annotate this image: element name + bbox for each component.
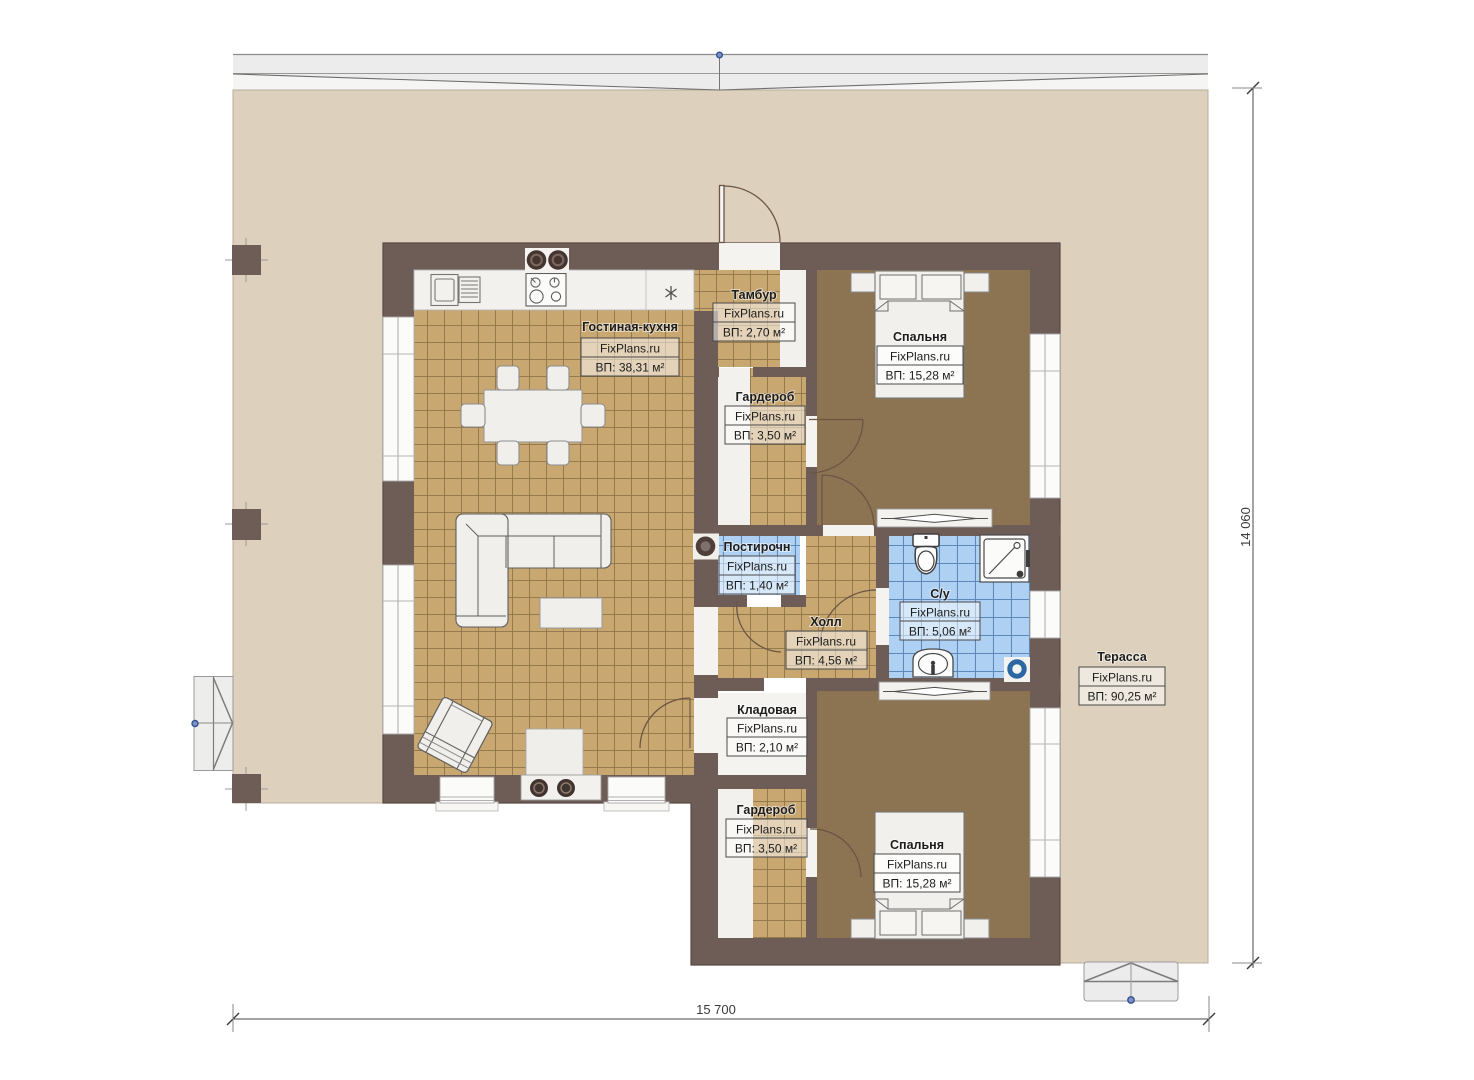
svg-text:Гардероб: Гардероб [736, 803, 795, 817]
svg-text:ВП: 5,06 м²: ВП: 5,06 м² [909, 625, 971, 639]
svg-text:ВП: 1,40 м²: ВП: 1,40 м² [726, 579, 788, 593]
svg-text:Гардероб: Гардероб [735, 390, 794, 404]
svg-text:FixPlans.ru: FixPlans.ru [600, 342, 660, 356]
svg-text:FixPlans.ru: FixPlans.ru [724, 307, 784, 321]
svg-text:FixPlans.ru: FixPlans.ru [1092, 671, 1152, 685]
svg-text:ВП: 15,28 м²: ВП: 15,28 м² [886, 369, 955, 383]
svg-text:ВП: 2,70 м²: ВП: 2,70 м² [723, 326, 785, 340]
svg-text:ВП: 4,56 м²: ВП: 4,56 м² [795, 654, 857, 668]
svg-text:Постирочн: Постирочн [724, 540, 791, 554]
svg-text:FixPlans.ru: FixPlans.ru [910, 606, 970, 620]
svg-text:Терасса: Терасса [1097, 650, 1148, 664]
svg-text:FixPlans.ru: FixPlans.ru [727, 560, 787, 574]
svg-text:ВП: 3,50 м²: ВП: 3,50 м² [735, 842, 797, 856]
svg-text:Гостиная-кухня: Гостиная-кухня [582, 320, 678, 334]
svg-text:С/у: С/у [930, 587, 950, 601]
svg-text:FixPlans.ru: FixPlans.ru [887, 858, 947, 872]
svg-text:ВП: 3,50 м²: ВП: 3,50 м² [734, 429, 796, 443]
svg-text:FixPlans.ru: FixPlans.ru [737, 722, 797, 736]
svg-text:Спальня: Спальня [893, 330, 947, 344]
svg-text:ВП: 15,28 м²: ВП: 15,28 м² [883, 877, 952, 891]
svg-text:ВП: 38,31 м²: ВП: 38,31 м² [596, 361, 665, 375]
svg-text:FixPlans.ru: FixPlans.ru [735, 410, 795, 424]
svg-text:FixPlans.ru: FixPlans.ru [890, 350, 950, 364]
svg-text:Спальня: Спальня [890, 838, 944, 852]
svg-text:ВП: 2,10 м²: ВП: 2,10 м² [736, 741, 798, 755]
svg-text:Кладовая: Кладовая [737, 703, 797, 717]
svg-text:15 700: 15 700 [696, 1002, 736, 1017]
svg-text:FixPlans.ru: FixPlans.ru [736, 823, 796, 837]
svg-text:ВП: 90,25 м²: ВП: 90,25 м² [1088, 690, 1157, 704]
svg-text:14 060: 14 060 [1238, 507, 1253, 547]
svg-text:Холл: Холл [810, 615, 841, 629]
svg-text:FixPlans.ru: FixPlans.ru [796, 635, 856, 649]
svg-text:Тамбур: Тамбур [731, 288, 777, 302]
